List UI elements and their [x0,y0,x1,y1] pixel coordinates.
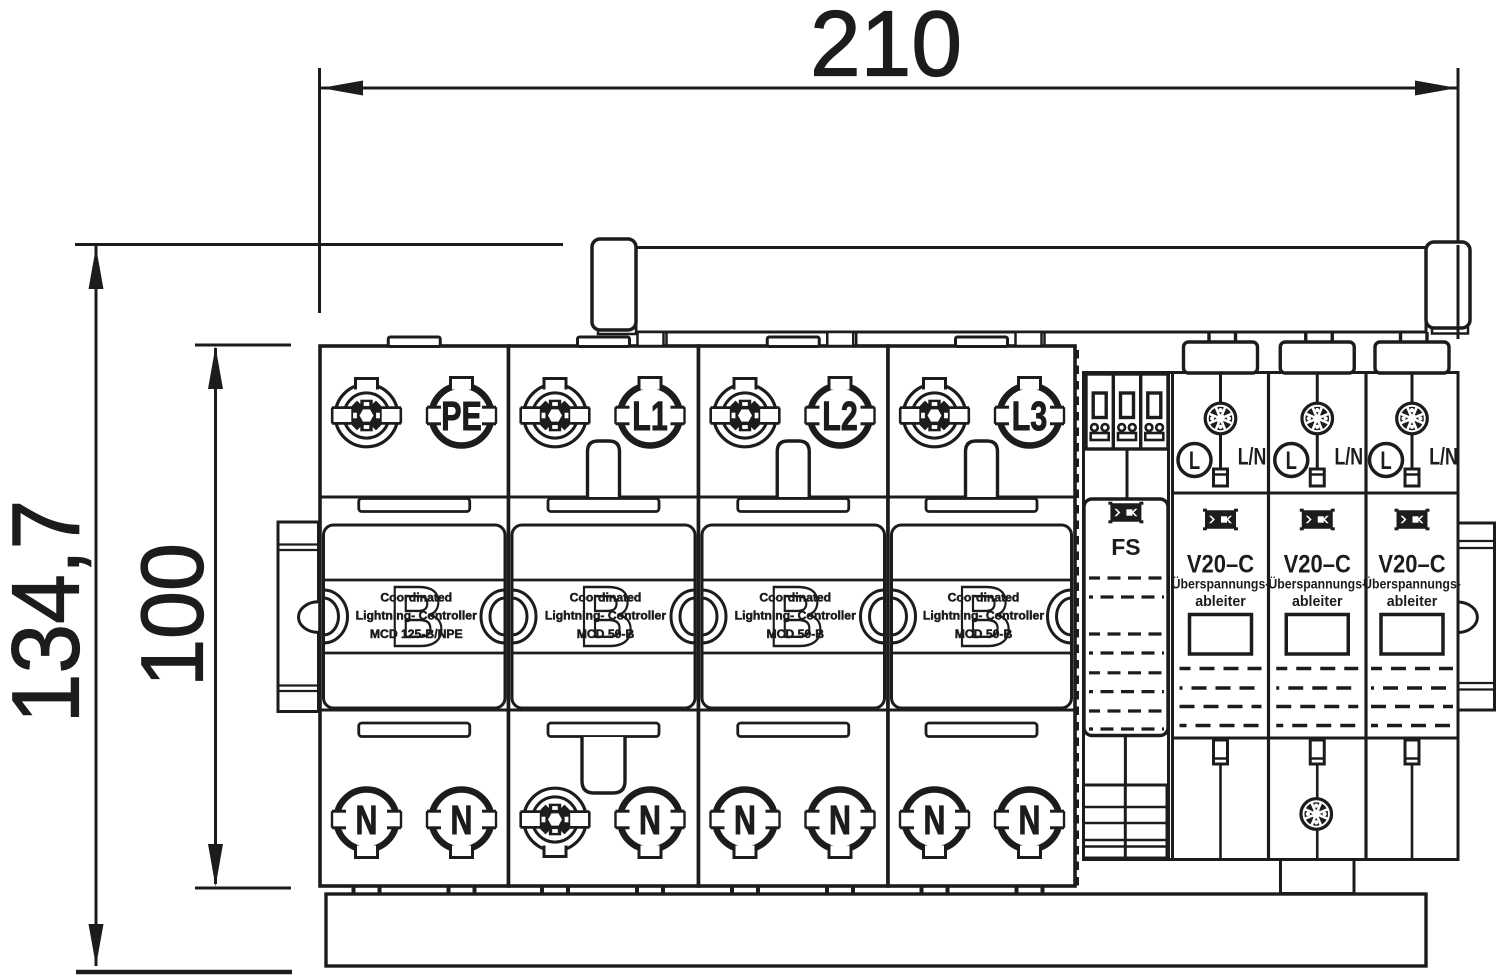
svg-text:L1: L1 [632,392,667,439]
svg-text:MCD 50-B: MCD 50-B [577,627,635,641]
svg-text:Überspannungs-: Überspannungs- [1172,576,1270,592]
svg-text:Coordinated: Coordinated [948,591,1020,605]
svg-text:ableiter: ableiter [1292,594,1343,610]
svg-text:L3: L3 [1012,392,1047,439]
svg-text:V20–C: V20–C [1284,550,1351,578]
svg-text:L: L [1189,446,1200,474]
svg-text:MCD 50-B: MCD 50-B [766,627,824,641]
svg-text:N: N [1019,796,1041,843]
svg-text:FS: FS [1111,534,1140,560]
svg-text:L: L [1286,446,1297,474]
svg-text:Coordinated: Coordinated [570,591,642,605]
svg-text:L/N: L/N [1334,444,1363,470]
svg-text:100: 100 [124,543,222,687]
svg-text:Überspannungs-: Überspannungs- [1268,576,1366,592]
svg-text:N: N [924,796,946,843]
svg-text:N: N [734,796,756,843]
svg-text:Überspannungs-: Überspannungs- [1363,576,1461,592]
svg-text:ableiter: ableiter [1387,594,1438,610]
svg-text:N: N [356,796,378,843]
svg-text:Lightning- Controller: Lightning- Controller [923,609,1044,623]
svg-text:Lightning- Controller: Lightning- Controller [735,609,856,623]
svg-text:L: L [1380,446,1391,474]
svg-text:Coordinated: Coordinated [380,591,452,605]
svg-text:L/N: L/N [1238,444,1267,470]
svg-text:V20–C: V20–C [1378,550,1445,578]
svg-text:Lightning- Controller: Lightning- Controller [545,609,666,623]
svg-text:MCD 50-B: MCD 50-B [955,627,1013,641]
svg-text:MCD 125-B/NPE: MCD 125-B/NPE [370,627,463,641]
svg-text:L/N: L/N [1429,444,1458,470]
svg-text:210: 210 [810,0,962,96]
svg-text:N: N [451,796,473,843]
svg-text:Lightning- Controller: Lightning- Controller [356,609,477,623]
svg-text:N: N [639,796,661,843]
svg-text:ableiter: ableiter [1195,594,1246,610]
svg-text:L2: L2 [822,392,857,439]
svg-text:Coordinated: Coordinated [759,591,831,605]
svg-text:N: N [829,796,851,843]
svg-text:134,7: 134,7 [0,500,99,723]
svg-text:V20–C: V20–C [1187,550,1254,578]
svg-text:PE: PE [441,392,481,439]
